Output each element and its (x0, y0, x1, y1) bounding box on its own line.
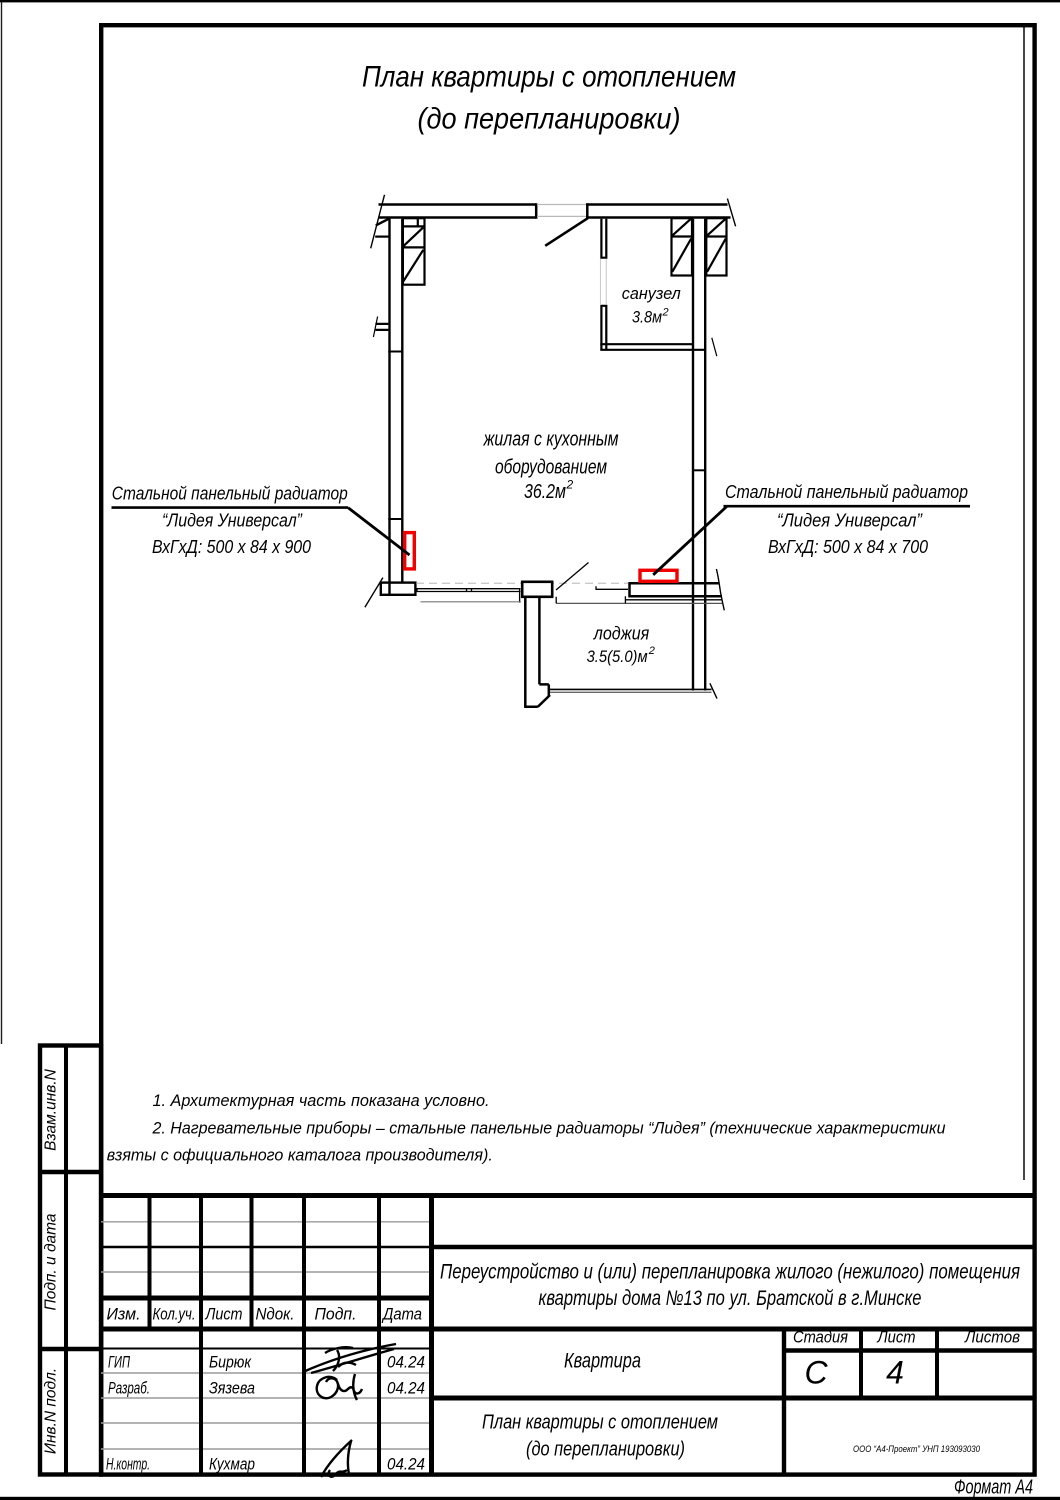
svg-text:Зязева: Зязева (209, 1380, 255, 1398)
svg-text:2: 2 (566, 478, 574, 492)
svg-text:ООО “А4-Проект” УНП 193093030: ООО “А4-Проект” УНП 193093030 (853, 1444, 981, 1455)
svg-text:Лист: Лист (205, 1306, 243, 1324)
svg-text:Кол.уч.: Кол.уч. (153, 1306, 196, 1324)
svg-text:Разраб.: Разраб. (108, 1380, 150, 1398)
svg-text:План квартиры с отоплением: План квартиры с отоплением (482, 1411, 718, 1434)
svg-text:Инв.N подл.: Инв.N подл. (43, 1368, 60, 1454)
svg-text:Стадия: Стадия (793, 1328, 848, 1347)
svg-text:Формат А4: Формат А4 (954, 1477, 1033, 1499)
svg-text:2: 2 (648, 645, 655, 657)
svg-text:Н.контр.: Н.контр. (106, 1456, 150, 1474)
svg-text:взяты с официального каталога: взяты с официального каталога производит… (107, 1146, 493, 1165)
svg-text:санузел: санузел (622, 284, 681, 303)
svg-text:жилая с кухонным: жилая с кухонным (483, 429, 619, 451)
svg-text:Nдок.: Nдок. (256, 1306, 295, 1324)
svg-text:Переустройство и (или) перепла: Переустройство и (или) перепланировка жи… (440, 1261, 1020, 1284)
svg-text:3.5(5.0)м: 3.5(5.0)м (587, 647, 648, 666)
svg-text:04.24: 04.24 (387, 1354, 425, 1372)
svg-text:Стальной панельный радиатор: Стальной панельный радиатор (725, 482, 968, 502)
svg-text:Изм.: Изм. (107, 1306, 141, 1324)
svg-text:Листов: Листов (964, 1328, 1020, 1347)
svg-text:Дата: Дата (381, 1306, 422, 1324)
svg-text:лоджия: лоджия (593, 624, 650, 644)
svg-text:(до перепланировки): (до перепланировки) (526, 1438, 685, 1461)
svg-text:Кухмар: Кухмар (209, 1456, 255, 1474)
svg-text:Бирюк: Бирюк (209, 1354, 252, 1372)
svg-text:04.24: 04.24 (387, 1456, 425, 1474)
svg-text:(до перепланировки): (до перепланировки) (418, 103, 681, 136)
svg-text:План квартиры с отоплением: План квартиры с отоплением (362, 61, 736, 94)
svg-text:04.24: 04.24 (387, 1380, 425, 1398)
svg-text:2: 2 (662, 307, 669, 319)
svg-text:Взам.инв.N: Взам.инв.N (43, 1068, 60, 1150)
svg-text:36.2м: 36.2м (524, 481, 566, 503)
svg-text:“Лидея Универсал”: “Лидея Универсал” (777, 511, 923, 531)
svg-text:2. Нагревательные приборы – ст: 2. Нагревательные приборы – стальные пан… (152, 1119, 946, 1138)
svg-text:квартиры дома №13 по ул. Братс: квартиры дома №13 по ул. Братской в г.Ми… (539, 1287, 922, 1310)
svg-text:Лист: Лист (877, 1328, 916, 1347)
svg-text:1. Архитектурная часть показан: 1. Архитектурная часть показана условно. (153, 1091, 490, 1110)
svg-text:“Лидея Универсал”: “Лидея Универсал” (162, 511, 303, 531)
svg-text:Подп.: Подп. (315, 1306, 357, 1324)
svg-text:ВхГхД: 500 х 84 х 700: ВхГхД: 500 х 84 х 700 (768, 537, 928, 557)
svg-text:Стальной панельный радиатор: Стальной панельный радиатор (112, 484, 348, 504)
svg-text:С: С (804, 1355, 828, 1391)
svg-text:оборудованием: оборудованием (495, 457, 607, 479)
svg-text:Подп. и дата: Подп. и дата (43, 1213, 60, 1310)
svg-text:3.8м: 3.8м (632, 308, 662, 327)
svg-text:4: 4 (886, 1355, 904, 1391)
svg-text:ВхГхД: 500 х 84 х 900: ВхГхД: 500 х 84 х 900 (152, 537, 311, 557)
svg-text:Квартира: Квартира (564, 1350, 641, 1373)
svg-text:ГИП: ГИП (108, 1354, 130, 1372)
